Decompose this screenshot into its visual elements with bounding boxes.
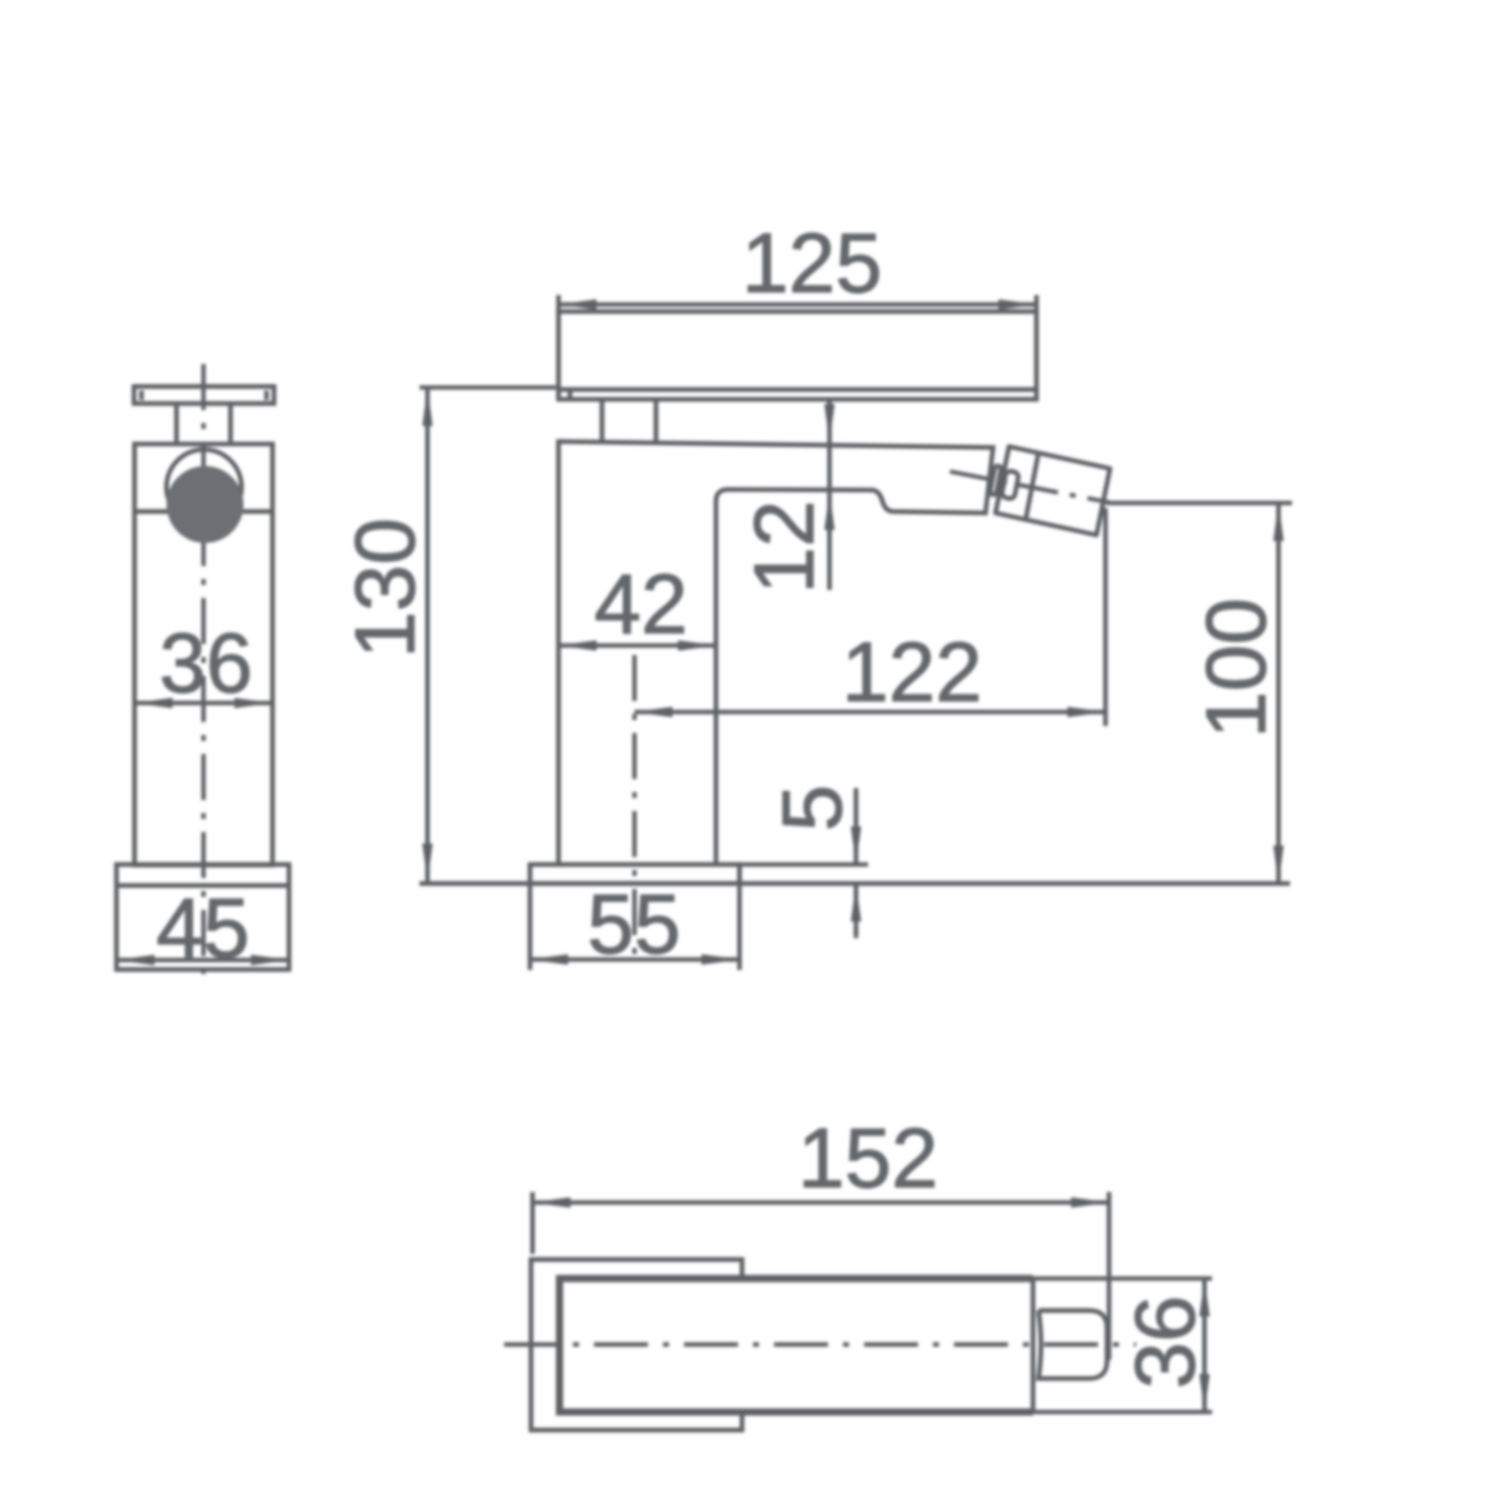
svg-text:36: 36 — [1118, 1295, 1212, 1388]
svg-text:152: 152 — [798, 1111, 938, 1205]
svg-text:42: 42 — [594, 557, 687, 651]
svg-text:55: 55 — [587, 877, 680, 971]
svg-text:125: 125 — [742, 216, 882, 310]
svg-text:36: 36 — [159, 616, 252, 710]
svg-text:130: 130 — [338, 518, 432, 658]
svg-text:100: 100 — [1189, 598, 1283, 738]
svg-text:5: 5 — [765, 785, 859, 832]
svg-text:122: 122 — [842, 625, 982, 719]
svg-text:12: 12 — [737, 500, 831, 593]
svg-text:45: 45 — [156, 881, 249, 975]
